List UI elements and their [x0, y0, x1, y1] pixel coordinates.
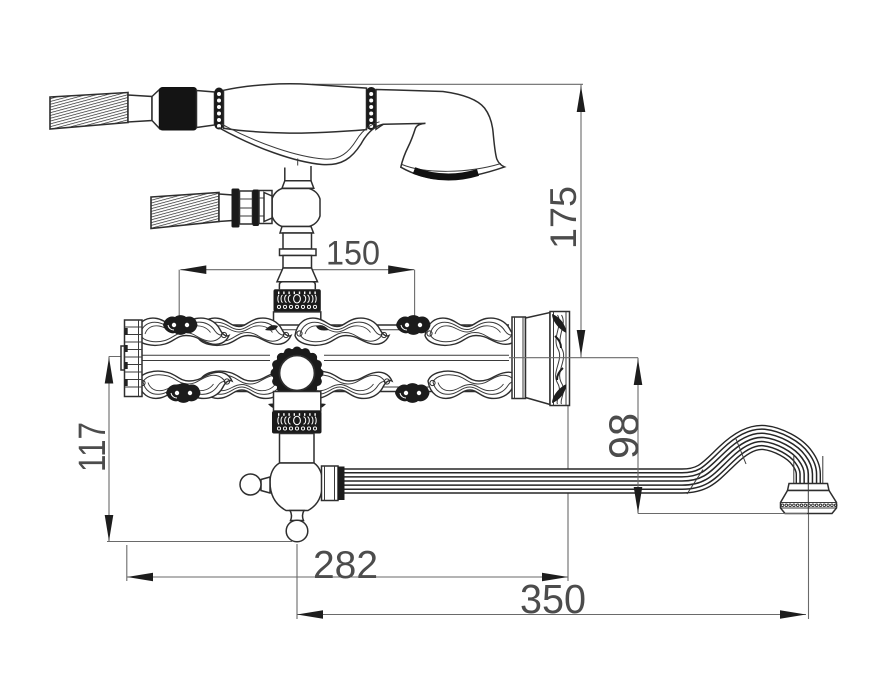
- svg-text:117: 117: [72, 422, 114, 472]
- svg-text:150: 150: [326, 235, 380, 273]
- svg-text:175: 175: [543, 186, 584, 249]
- svg-text:98: 98: [600, 413, 647, 459]
- svg-text:350: 350: [520, 576, 586, 622]
- svg-text:282: 282: [313, 544, 378, 587]
